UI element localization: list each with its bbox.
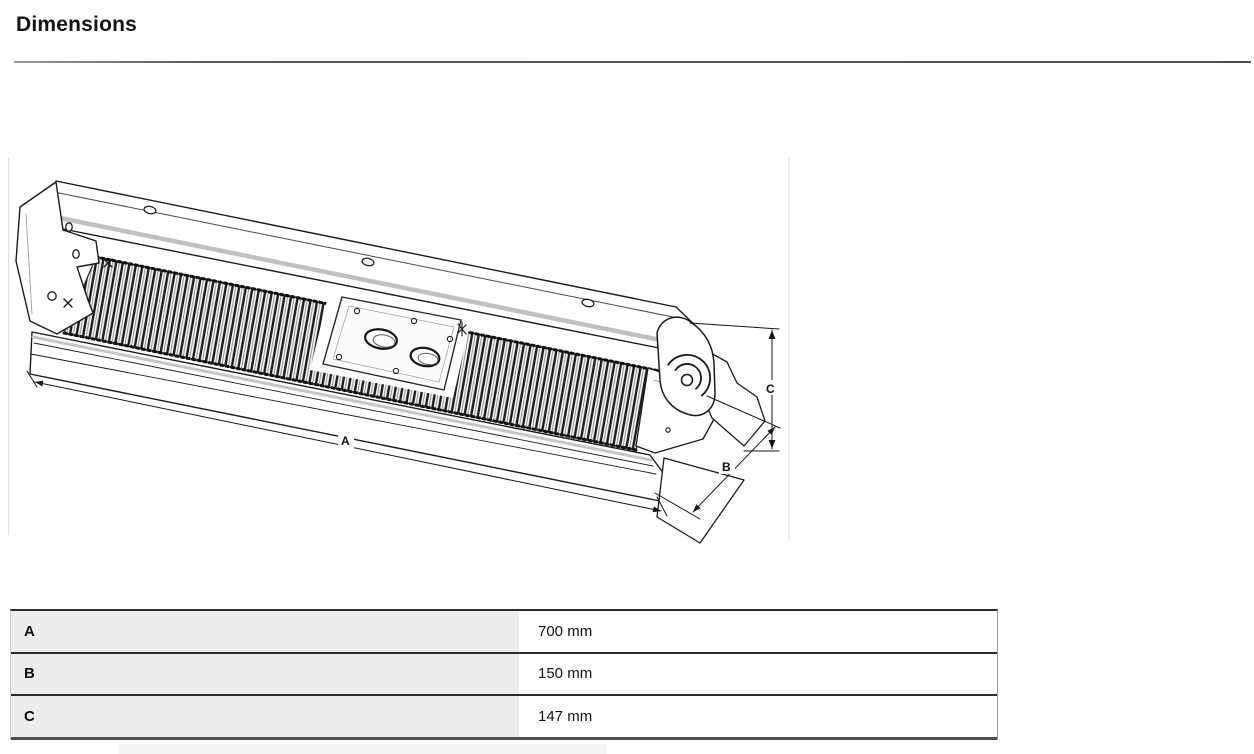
table-row-b: B 150 mm [11,654,997,697]
dimension-label-cell: B [11,654,519,695]
product-drawing-figure: A B C [0,140,830,570]
dimension-value-cell: 700 mm [519,611,997,652]
title-divider [14,61,1251,63]
table-next-row-clipped [118,744,607,754]
dimension-value-cell: 150 mm [519,654,997,695]
dim-label-a: A [341,434,350,448]
dimensions-table: A 700 mm B 150 mm C 147 mm [10,609,998,740]
dim-label-c: C [766,382,775,396]
product-isometric-drawing-svg: A B C [0,140,830,570]
table-row-a: A 700 mm [11,611,997,654]
dimension-label-cell: A [11,611,519,652]
table-row-c: C 147 mm [11,696,997,740]
dim-label-b: B [722,460,731,474]
dimension-label-cell: C [11,696,519,737]
dimension-value-cell: 147 mm [519,696,997,737]
page-title: Dimensions [16,13,137,37]
